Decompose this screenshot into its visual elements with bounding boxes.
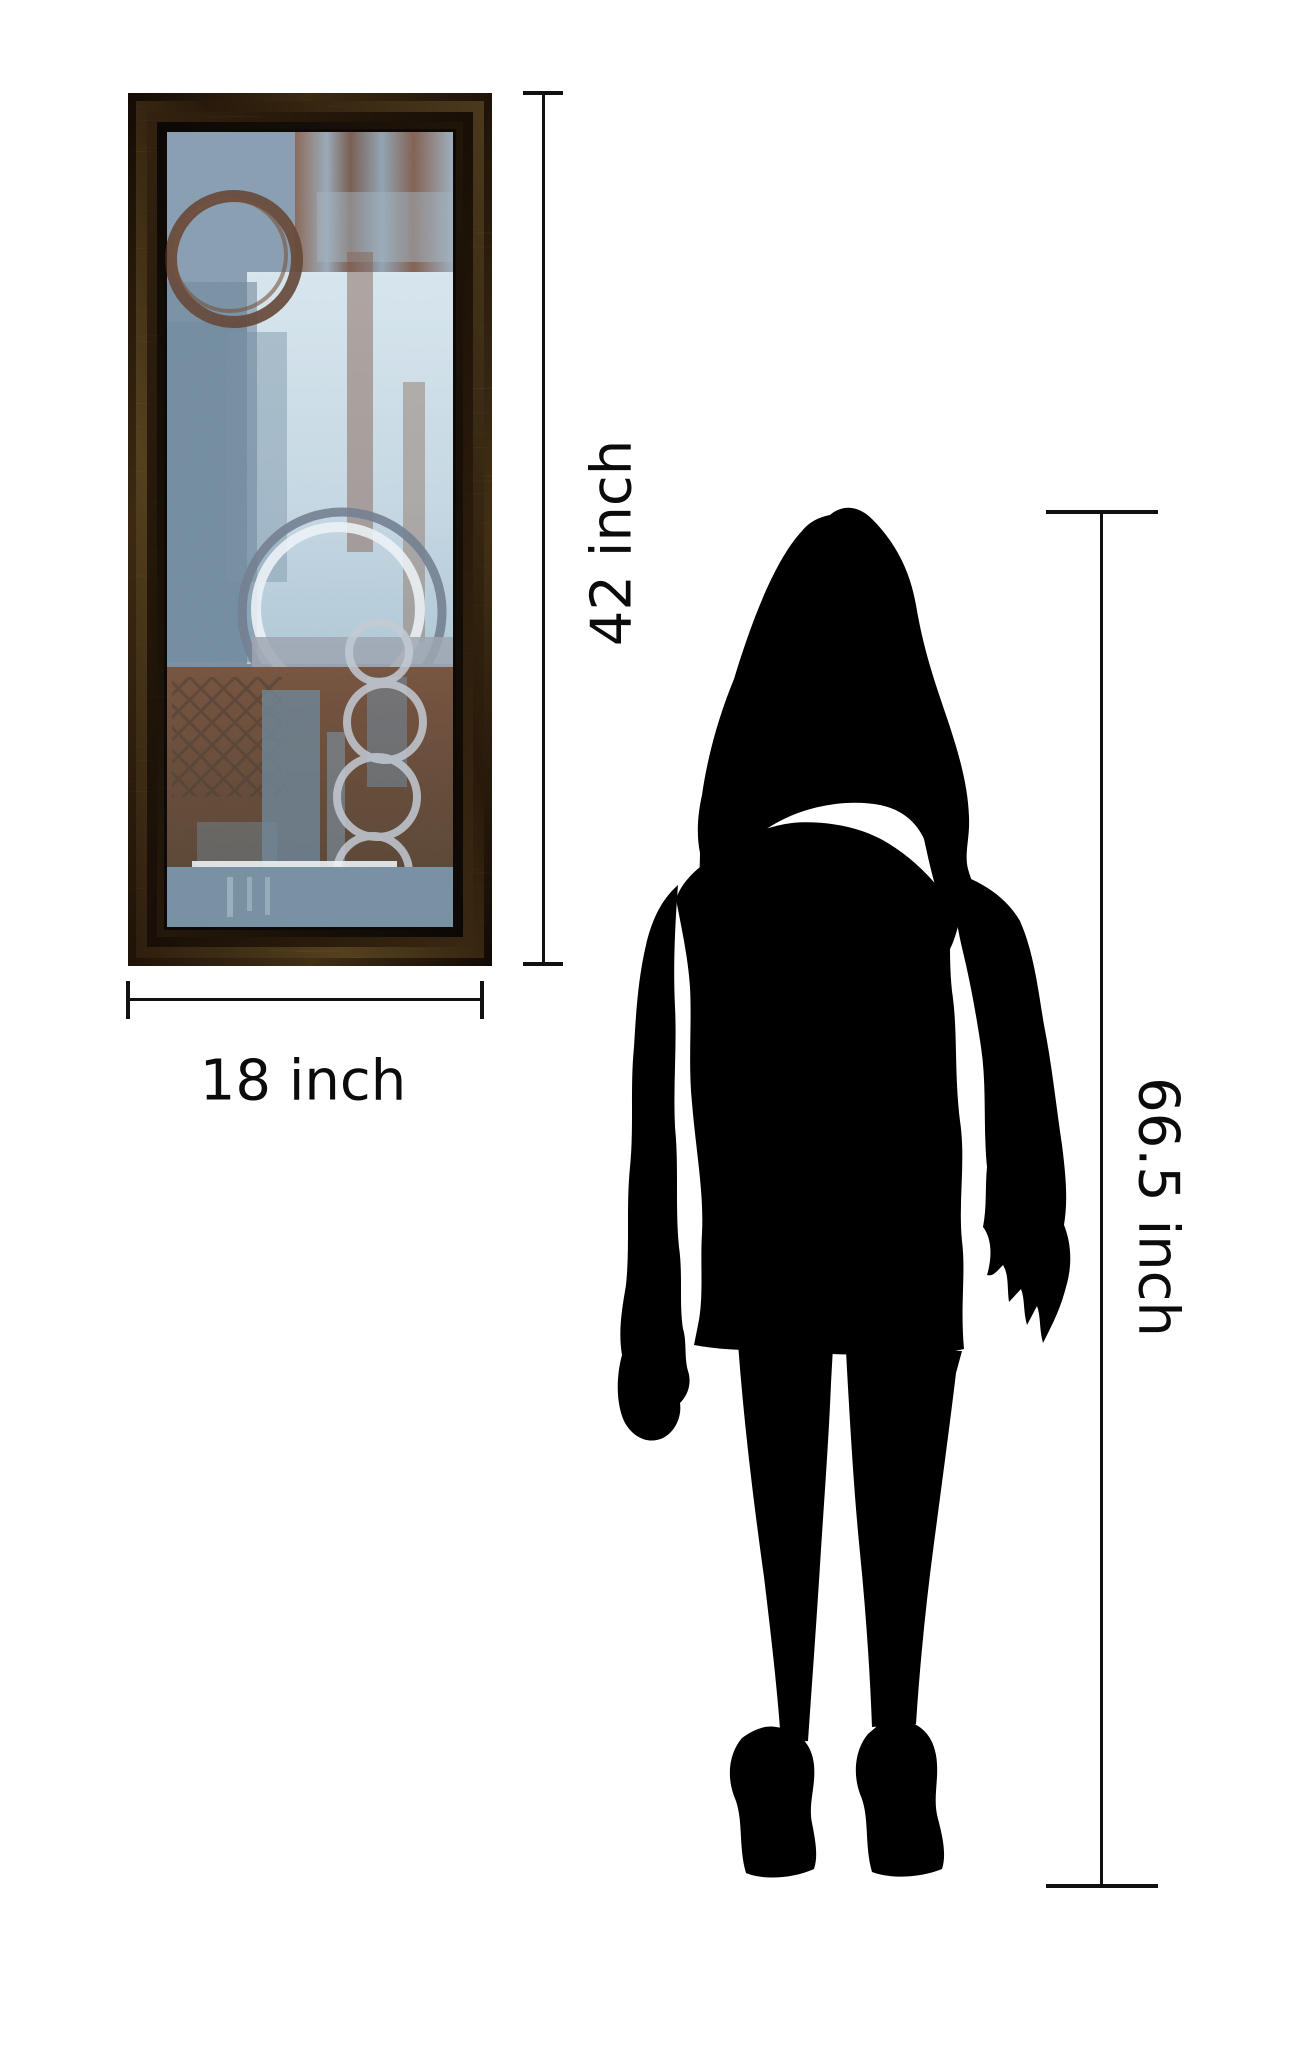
- art-width-dimension-line: [128, 998, 484, 1001]
- person-height-bottom-tick: [1046, 1884, 1158, 1888]
- art-height-top-tick: [523, 91, 563, 95]
- silhouette-right-arm: [950, 871, 1070, 1343]
- person-height-dimension-line: [1100, 512, 1103, 1886]
- art-height-bottom-tick: [523, 962, 563, 966]
- person-height-label: 66.5 inch: [1126, 1077, 1191, 1337]
- silhouette-left-arm: [618, 885, 690, 1441]
- silhouette-torso: [676, 822, 964, 1355]
- silhouette-right-leg: [846, 1351, 962, 1727]
- person-height-top-tick: [1046, 510, 1158, 514]
- framed-wall-art: [128, 93, 492, 966]
- art-height-dimension-line: [542, 93, 545, 966]
- silhouette-right-heel: [856, 1719, 944, 1877]
- silhouette-left-heel: [730, 1726, 816, 1877]
- art-width-left-tick: [126, 981, 130, 1019]
- silhouette-left-leg: [738, 1343, 833, 1743]
- woman-silhouette: [560, 505, 1080, 1885]
- art-width-label: 18 inch: [200, 1049, 406, 1114]
- abstract-painting: [167, 132, 453, 927]
- art-width-right-tick: [480, 981, 484, 1019]
- product-dimension-diagram: 42 inch 18 inch 66.5 inch: [0, 0, 1296, 2048]
